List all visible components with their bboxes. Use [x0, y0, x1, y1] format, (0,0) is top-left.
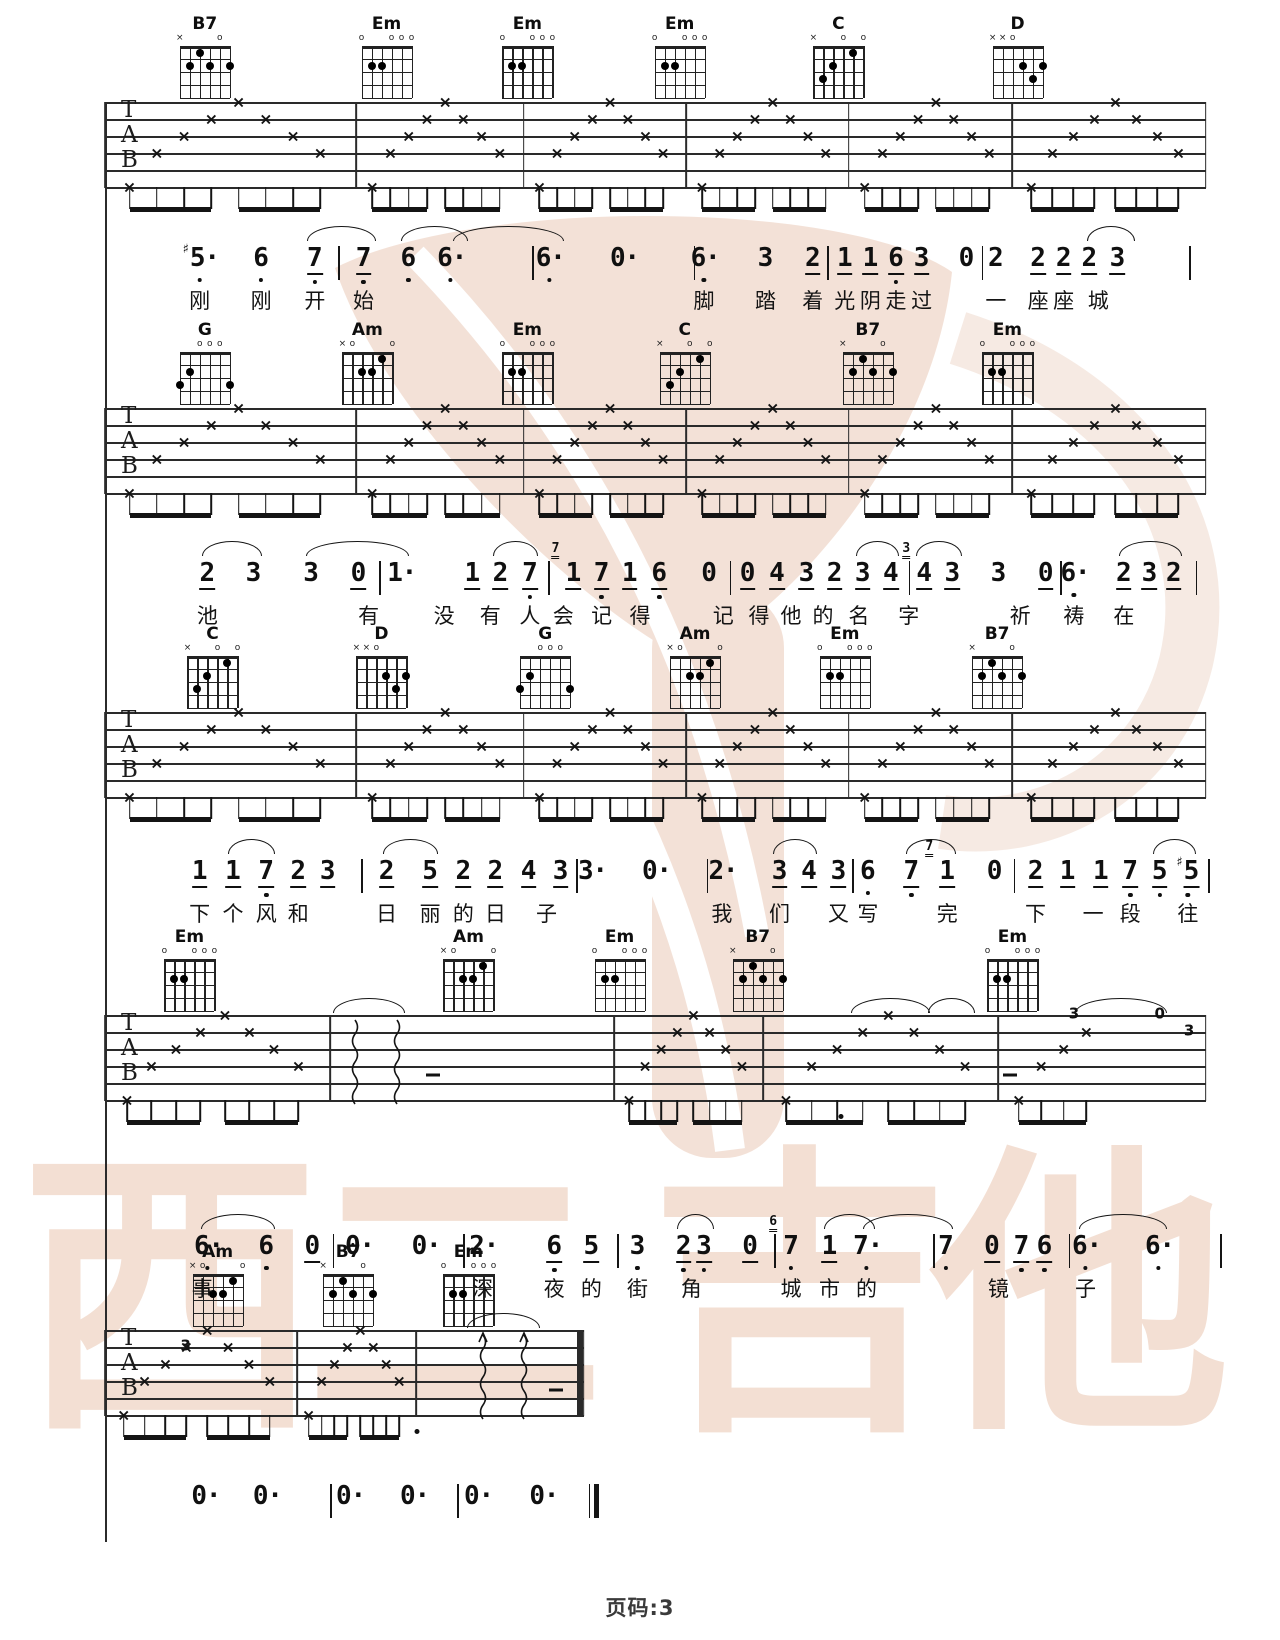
chord-grid-body: oooo — [164, 946, 214, 1013]
jianpu-note: 6· — [437, 243, 464, 273]
chord-string-markers: ××o — [993, 33, 1043, 44]
chord-grid-body: oooo — [502, 339, 552, 406]
note-stem — [1063, 1100, 1065, 1122]
sharp-sign: ♯ — [183, 243, 189, 257]
finger-dot — [378, 355, 386, 363]
strum-x: × — [550, 450, 563, 469]
beam — [130, 513, 212, 518]
chord-name: Em — [979, 320, 1035, 339]
strum-x: × — [568, 433, 581, 452]
jianpu-note: 6· — [691, 243, 718, 273]
open-string-icon: o — [350, 339, 356, 349]
note-digit: 2 — [1030, 243, 1046, 275]
fretboard-fret-line — [180, 378, 230, 379]
note-digit: 3 — [914, 243, 930, 275]
fretboard-fret-line — [323, 1287, 373, 1288]
chord-diagram-Am: Am×oo — [667, 624, 723, 710]
fretboard-fret-line — [180, 72, 230, 73]
note-digit: 2 — [1056, 243, 1072, 275]
chord-string-markers: oooo — [502, 339, 552, 350]
note-stem — [935, 797, 937, 819]
strum-x: × — [1088, 110, 1101, 129]
chord-fretboard — [843, 350, 893, 406]
fretboard-string-line — [230, 46, 231, 98]
lyric-syllable: 没 — [434, 604, 455, 628]
jianpu-note: 0 — [351, 558, 367, 590]
chord-name: Em — [499, 320, 555, 339]
augmentation-dot: · — [418, 1481, 427, 1509]
measure-barline — [1205, 408, 1207, 494]
note-stem — [825, 187, 827, 209]
open-string-icon: o — [677, 643, 683, 653]
note-stem — [864, 493, 866, 515]
strum-x: × — [493, 144, 506, 163]
finger-dot — [459, 975, 467, 983]
muted-string-icon: × — [729, 946, 737, 956]
augmentation-dot: · — [455, 243, 464, 271]
chord-string-markers: oooo — [164, 946, 214, 957]
fretboard-string-line — [412, 46, 413, 98]
staff-line — [105, 493, 1206, 495]
fretboard-fret-line — [982, 391, 1032, 392]
strum-x: × — [1130, 720, 1143, 739]
jianpu-final-barline — [589, 1484, 591, 1518]
strum-x: × — [748, 416, 761, 435]
chord-diagram-Em: Emoooo — [979, 320, 1035, 406]
chord-name: G — [177, 320, 233, 339]
open-string-icon: o — [390, 339, 396, 349]
jianpu-barline — [1069, 1234, 1071, 1268]
note-digit: 4 — [769, 558, 785, 590]
open-string-icon: o — [692, 33, 698, 43]
jianpu-note: 2 — [988, 243, 1004, 273]
note-stem — [408, 493, 410, 515]
jianpu-note: 5 — [1152, 856, 1168, 888]
note-stem — [953, 187, 955, 209]
note-stem — [913, 1100, 915, 1122]
chord-fretboard — [180, 350, 230, 406]
note-digit: 2 — [379, 856, 395, 888]
note-stem — [265, 797, 267, 819]
chord-diagram-C: C×oo — [657, 320, 713, 406]
muted-string-icon: × — [810, 33, 818, 43]
fretboard-fret-line — [843, 365, 893, 366]
fretboard-string-line — [1032, 352, 1033, 404]
note-stem — [609, 493, 611, 515]
note-stem — [882, 493, 884, 515]
strum-x: × — [1067, 127, 1080, 146]
lyric-syllable: 得 — [749, 604, 770, 628]
lyric-syllable: 记 — [591, 604, 612, 628]
note-stem — [426, 797, 428, 819]
note-stem — [645, 187, 647, 209]
jianpu-note: 3 — [831, 856, 847, 888]
strum-x: × — [713, 144, 726, 163]
note-stem — [574, 187, 576, 209]
chord-grid-body: ×oo — [342, 339, 392, 406]
measure-barline — [523, 712, 525, 798]
jianpu-note: 3 — [553, 856, 569, 888]
sheet-music-page: 页码:3 西二吉他B7×oEmooooEmooooEmooooC×ooD××oT… — [0, 0, 1280, 1640]
jianpu-note: 3 — [320, 856, 336, 888]
strum-x: × — [713, 754, 726, 773]
fretboard-fret-line — [180, 85, 230, 86]
finger-dot — [226, 62, 234, 70]
note-digit: 0 — [1038, 558, 1054, 590]
low-octave-dot — [864, 1266, 869, 1271]
lyric-syllable: 池 — [197, 604, 218, 628]
chord-string-markers: ooo — [520, 643, 570, 654]
chord-fretboard — [993, 44, 1043, 100]
strum-x: × — [1130, 110, 1143, 129]
lyric-syllable: 刚 — [251, 289, 272, 313]
chord-diagram-C: C×oo — [184, 624, 240, 710]
chord-string-markers: ××o — [356, 643, 406, 654]
strum-x: × — [177, 433, 190, 452]
lyric-syllable: 刚 — [189, 289, 210, 313]
fretboard-fret-line — [362, 85, 412, 86]
finger-dot — [676, 368, 684, 376]
note-stem — [645, 797, 647, 819]
finger-dot — [661, 62, 669, 70]
staff-line — [105, 476, 1206, 478]
lyric-syllable: 城 — [1088, 289, 1109, 313]
fretboard-fret-line — [164, 985, 214, 986]
finger-dot — [1018, 672, 1026, 680]
staff-line — [105, 1032, 1206, 1034]
note-digit: 6 — [400, 243, 416, 273]
open-string-icon: o — [192, 946, 198, 956]
note-digit: 3 — [246, 558, 262, 588]
low-octave-dot — [1072, 593, 1077, 598]
fretboard-string-line — [392, 352, 393, 404]
beam — [786, 1120, 863, 1125]
note-stem — [882, 187, 884, 209]
jianpu-barline — [774, 1234, 776, 1268]
strum-x: × — [475, 737, 488, 756]
fretboard-string-line — [243, 1274, 244, 1326]
chord-name: Em — [652, 14, 708, 33]
beam — [610, 817, 663, 822]
finger-dot — [459, 1290, 467, 1298]
low-octave-dot — [205, 1266, 210, 1271]
note-stem — [183, 187, 185, 209]
arpeggio-wave-icon — [517, 1327, 531, 1421]
note-stem — [754, 187, 756, 209]
note-stem — [719, 797, 721, 819]
chord-grid-body: ×o — [843, 339, 893, 406]
lyric-syllable: 有 — [358, 604, 379, 628]
fretboard-fret-line — [164, 998, 214, 999]
strum-x: × — [568, 127, 581, 146]
note-stem — [989, 797, 991, 819]
note-stem — [754, 493, 756, 515]
fretboard-nut — [502, 352, 552, 355]
chord-fretboard — [813, 44, 863, 100]
finger-dot — [226, 381, 234, 389]
strum-x: × — [856, 1023, 869, 1042]
strum-x: × — [1046, 144, 1059, 163]
finger-dot — [988, 659, 996, 667]
strum-x: × — [1109, 703, 1122, 722]
strum-x: × — [315, 1372, 328, 1391]
jianpu-note: 7 — [1014, 1231, 1030, 1263]
note-digit: 1 — [837, 243, 853, 275]
strum-x: × — [731, 737, 744, 756]
strum-x: × — [603, 399, 616, 418]
chord-string-markers: oooo — [502, 33, 552, 44]
dotted-rhythm-dot — [838, 1114, 843, 1119]
augmentation-dot: · — [660, 856, 669, 884]
jianpu-note: 2 — [1028, 856, 1044, 888]
strum-x: × — [766, 93, 779, 112]
jianpu-note: 7 — [594, 558, 610, 590]
note-digit: 2 — [1081, 243, 1097, 275]
beam — [610, 513, 663, 518]
note-stem — [539, 797, 541, 819]
note-digit: 3 — [944, 558, 960, 590]
measure-barline — [685, 408, 687, 494]
beam — [1019, 1120, 1087, 1125]
finger-dot — [329, 1290, 337, 1298]
strum-x: × — [314, 450, 327, 469]
low-octave-dot — [1128, 893, 1133, 898]
beam — [372, 817, 427, 822]
jianpu-barline — [730, 561, 732, 595]
note-stem — [238, 187, 240, 209]
note-stem — [129, 187, 131, 209]
open-string-icon: o — [374, 643, 380, 653]
low-octave-dot — [552, 1268, 557, 1273]
staff-line — [105, 1330, 584, 1332]
jianpu-barline — [548, 561, 550, 595]
note-stem — [1094, 187, 1096, 209]
tab-letter-b: B — [121, 1061, 138, 1085]
note-stem — [660, 1100, 662, 1122]
staff-line — [105, 170, 1206, 172]
chord-diagram-Em: Emoooo — [161, 927, 217, 1013]
chord-grid-body: oooo — [502, 33, 552, 100]
lyric-syllable: 字 — [898, 604, 919, 628]
beam — [773, 513, 826, 518]
note-digit: 2 — [709, 856, 725, 886]
strum-x: × — [1067, 433, 1080, 452]
staff-line — [105, 712, 1206, 714]
note-digit: 7 — [1014, 1231, 1030, 1263]
finger-dot — [998, 368, 1006, 376]
lyric-syllable: 们 — [769, 902, 790, 926]
muted-string-icon: × — [184, 643, 192, 653]
jianpu-note: 6· — [1072, 1231, 1099, 1261]
note-stem — [935, 187, 937, 209]
fretboard-nut — [733, 959, 783, 962]
note-stem — [662, 493, 664, 515]
muted-string-icon: × — [839, 339, 847, 349]
finger-dot — [479, 962, 487, 970]
open-string-icon: o — [409, 33, 415, 43]
note-stem — [754, 797, 756, 819]
jianpu-note: 3 — [991, 558, 1007, 588]
augmentation-dot: · — [208, 243, 217, 271]
chord-grid-body: ×oo — [670, 643, 720, 710]
finger-dot — [826, 672, 834, 680]
note-digit: 7 — [258, 856, 274, 888]
low-octave-dot — [406, 278, 411, 283]
chord-name: Am — [440, 927, 496, 946]
fretboard-fret-line — [323, 1313, 373, 1314]
fretboard-nut — [362, 46, 412, 49]
note-stem — [371, 797, 373, 819]
fretboard-fret-line — [972, 695, 1022, 696]
jianpu-note: 2 — [200, 558, 216, 590]
chord-string-markers: ×oo — [670, 643, 720, 654]
finger-dot — [696, 355, 704, 363]
note-stem — [1157, 493, 1159, 515]
chord-diagram-Em: Emoooo — [499, 14, 555, 100]
note-stem — [888, 1100, 890, 1122]
open-string-icon: o — [399, 33, 405, 43]
jianpu-note: 6 — [258, 1231, 274, 1261]
strum-x: × — [1046, 754, 1059, 773]
measure-barline — [355, 408, 357, 494]
note-digit: 1 — [1093, 856, 1109, 888]
note-stem — [592, 797, 594, 819]
strum-x: × — [876, 450, 889, 469]
fretboard-fret-line — [972, 708, 1022, 709]
jianpu-note: 7 — [522, 558, 538, 590]
finger-dot — [739, 975, 747, 983]
note-stem — [426, 493, 428, 515]
strum-x: × — [983, 144, 996, 163]
fretboard-fret-line — [443, 1011, 493, 1012]
beam — [629, 1120, 677, 1125]
low-octave-dot — [313, 280, 318, 285]
chord-string-markers: oooo — [595, 946, 645, 957]
jianpu-note: 2 — [290, 856, 306, 888]
note-stem — [645, 493, 647, 515]
note-stem — [592, 187, 594, 209]
note-stem — [408, 797, 410, 819]
fretboard-fret-line — [843, 378, 893, 379]
measure-barline — [523, 408, 525, 494]
jianpu-note: 4 — [883, 558, 899, 590]
note-stem — [882, 797, 884, 819]
tab-letter-t: T — [121, 404, 136, 428]
finger-dot — [392, 685, 400, 693]
note-stem — [677, 1100, 679, 1122]
note-digit: 0 — [304, 1231, 320, 1263]
jianpu-note: 1 — [622, 558, 638, 590]
fretboard-fret-line — [187, 669, 237, 670]
muted-string-icon: × — [353, 643, 361, 653]
chord-name: Am — [339, 320, 395, 339]
measure-barline — [1012, 102, 1014, 188]
chord-fretboard — [180, 44, 230, 100]
lyric-syllable: 日 — [376, 902, 397, 926]
measure-barline — [1205, 712, 1207, 798]
measure-barline — [1205, 102, 1207, 188]
note-stem — [390, 493, 392, 515]
strum-x: × — [1088, 720, 1101, 739]
note-digit: 6 — [253, 243, 269, 273]
note-digit: 1 — [622, 558, 638, 590]
lyric-syllable: 我 — [711, 902, 732, 926]
fretboard-fret-line — [520, 669, 570, 670]
strum-x: × — [703, 1023, 716, 1042]
fretboard-fret-line — [972, 669, 1022, 670]
strum-x: × — [801, 737, 814, 756]
jianpu-note: 0 — [742, 1231, 758, 1263]
fretboard-fret-line — [443, 998, 493, 999]
strum-x: × — [475, 433, 488, 452]
jianpu-barline — [933, 1234, 935, 1268]
muted-string-icon: × — [999, 33, 1007, 43]
fretboard-fret-line — [164, 972, 214, 973]
tab-letter-b: B — [121, 148, 138, 172]
open-string-icon: o — [1035, 946, 1041, 956]
augmentation-dot: · — [271, 1481, 280, 1509]
strum-x: × — [1067, 737, 1080, 756]
strum-x: × — [402, 737, 415, 756]
note-digit: 6 — [651, 558, 667, 590]
fretboard-fret-line — [502, 365, 552, 366]
note-stem — [644, 1100, 646, 1122]
jianpu-note: 3 — [799, 558, 815, 590]
fretboard-fret-line — [502, 391, 552, 392]
lyric-syllable: 座 — [1053, 289, 1074, 313]
fretboard-fret-line — [443, 985, 493, 986]
chord-diagram-Am: Am×oo — [339, 320, 395, 406]
chord-name: Em — [161, 927, 217, 946]
finger-dot — [666, 381, 674, 389]
measure-barline — [104, 1330, 106, 1416]
note-stem — [408, 187, 410, 209]
augmentation-dot: · — [405, 558, 414, 586]
note-stem — [899, 797, 901, 819]
strum-x: × — [656, 450, 669, 469]
note-stem — [935, 493, 937, 515]
note-digit: 7 — [938, 1231, 954, 1261]
note-stem — [719, 187, 721, 209]
fretboard-string-line — [1037, 959, 1038, 1011]
note-digit: 3 — [1110, 243, 1126, 275]
note-stem — [719, 493, 721, 515]
finger-dot — [1003, 975, 1011, 983]
fretboard-fret-line — [987, 985, 1037, 986]
strum-x: × — [731, 433, 744, 452]
note-digit: 5 — [1184, 856, 1200, 888]
strum-x: × — [263, 1372, 276, 1391]
jianpu-barline — [982, 246, 984, 280]
jianpu-note: 0 — [701, 558, 717, 588]
note-stem — [238, 493, 240, 515]
finger-dot — [869, 368, 877, 376]
note-stem — [574, 797, 576, 819]
note-stem — [790, 187, 792, 209]
low-octave-dot — [657, 595, 662, 600]
open-string-icon: o — [622, 946, 628, 956]
note-digit: 1 — [566, 558, 582, 590]
chord-string-markers: ×o — [180, 33, 230, 44]
chord-string-markers: ooo — [180, 339, 230, 350]
strum-x: × — [876, 144, 889, 163]
finger-dot — [1019, 62, 1027, 70]
lyric-syllable: 镜 — [988, 1277, 1009, 1301]
lyric-syllable: 日 — [485, 902, 506, 926]
strum-x: × — [947, 416, 960, 435]
beam — [1031, 207, 1094, 212]
lyric-syllable: 祈 — [1010, 604, 1031, 628]
